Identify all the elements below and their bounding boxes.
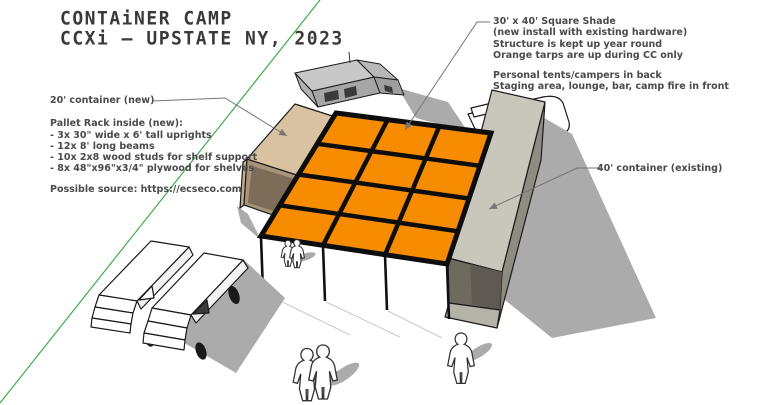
usage-note-line: Personal tents/campers in back [493,70,729,81]
container-40ft-label: 40' container (existing) [597,163,722,174]
canopy-pole [385,255,387,310]
pallet-rack-item: - 12x 8' long beams [50,141,257,152]
shade-note-line: Orange tarps are up during CC only [493,50,729,61]
shade-note-line: 30' x 40' Square Shade [493,16,729,27]
left-annotation-block: 20' container (new) Pallet Rack inside (… [50,95,257,195]
pallet-rack-heading: Pallet Rack inside (new): [50,118,257,129]
person-figure [448,333,475,383]
usage-note-line: Staging area, lounge, bar, camp fire in … [493,81,729,92]
shade-note-line: (new install with existing hardware) [493,27,729,38]
pallet-rack-item: - 8x 48"x96"x3/4" plywood for shelves [50,163,257,174]
drawing-title: CONTAiNER CAMP CCXi — UPSTATE NY, 2023 [60,9,344,50]
shade-note-line: Structure is kept up year round [493,39,729,50]
ground-shadow-lines [264,293,442,338]
sketchup-model-view: CONTAiNER CAMP CCXi — UPSTATE NY, 2023 2… [0,0,760,405]
title-line-1: CONTAiNER CAMP [60,9,344,29]
container-20ft-shadow [237,206,261,240]
source-note: Possible source: https://ecseco.com [50,184,257,195]
parked-vans [91,241,285,373]
pallet-rack-item: - 10x 2x8 wood studs for shelf support [50,152,257,163]
title-line-2: CCXi — UPSTATE NY, 2023 [60,29,344,49]
pallet-rack-item: - 3x 30" wide x 6' tall uprights [50,130,257,141]
canopy-pole [323,246,325,301]
container-20ft-label: 20' container (new) [50,95,257,106]
right-annotation-block: 30' x 40' Square Shade (new install with… [493,16,729,93]
